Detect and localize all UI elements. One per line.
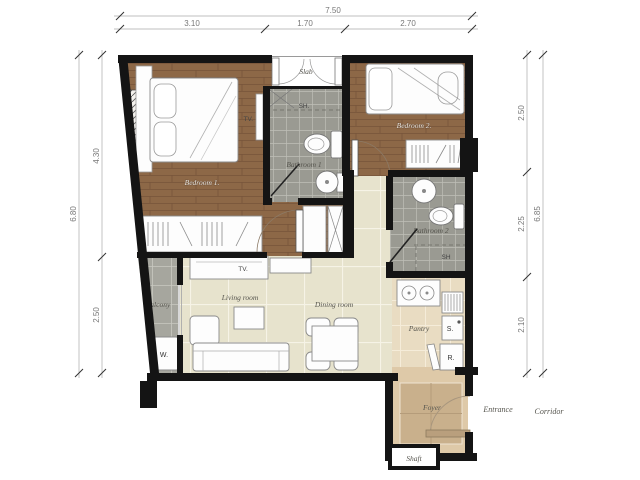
dim-top-seg2: 1.70 (297, 19, 313, 28)
tv-panel-bedroom1 (256, 94, 263, 140)
corridor-label: Corridor (535, 407, 565, 416)
foyer-label: Foyer (422, 403, 441, 412)
shower2-label: SH (441, 254, 450, 261)
bed-single (366, 64, 464, 114)
tv-living-label: TV. (238, 266, 248, 273)
wardrobe-bedroom1 (140, 216, 262, 252)
kitchen-sink-label: S. (447, 326, 454, 333)
dish-rack (442, 292, 463, 313)
pantry-label: Pantry (408, 324, 430, 333)
living-room-label: Living room (221, 293, 259, 302)
dining-room-label: Dining room (314, 300, 354, 309)
shaft-label: Shaft (406, 454, 422, 463)
linen-closet (328, 206, 343, 254)
closet-bedroom2 (406, 140, 463, 168)
floorplan-svg: TV. Bedroom 1. Bedroom 2. Slab (0, 0, 640, 480)
sink-bathroom2 (412, 179, 436, 203)
corridor-floor (348, 176, 391, 258)
bathroom2-label: Bathroom 2 (413, 226, 449, 235)
dimensions-left (75, 50, 106, 378)
washer-label: W. (160, 352, 168, 359)
floor-plan-canvas: TV. Bedroom 1. Bedroom 2. Slab (0, 0, 640, 480)
bathroom1-label: Bathroom 1 (286, 160, 321, 169)
dim-right-seg2: 2.25 (517, 216, 526, 232)
dim-left-total: 6.80 (69, 206, 78, 222)
dim-right-seg3: 2.10 (517, 317, 526, 333)
slab-label: Slab (299, 67, 313, 76)
tv-bedroom1-label: TV. (243, 116, 253, 123)
sofa (193, 343, 289, 371)
dimensions-top (114, 12, 478, 33)
dim-left-seg1: 4.30 (92, 148, 101, 164)
bedroom2-label: Bedroom 2. (397, 121, 432, 130)
fridge-label: R. (448, 355, 455, 362)
dim-right-seg1: 2.50 (517, 105, 526, 121)
dim-right-total: 6.85 (533, 206, 542, 222)
desk-bedroom1 (303, 206, 326, 254)
sink-bathroom1 (316, 171, 345, 193)
entrance-label: Entrance (482, 405, 513, 414)
bedroom1-label: Bedroom 1. (185, 178, 220, 187)
shower1-label: SH. (299, 103, 310, 110)
bed-double (150, 78, 238, 162)
armchair (190, 316, 219, 345)
dim-top-total: 7.50 (325, 6, 341, 15)
dim-left-seg2: 2.50 (92, 307, 101, 323)
dining-table (312, 326, 358, 361)
dim-top-seg3: 2.70 (400, 19, 416, 28)
stove (397, 280, 440, 306)
dim-top-seg1: 3.10 (184, 19, 200, 28)
coffee-table (234, 307, 264, 329)
